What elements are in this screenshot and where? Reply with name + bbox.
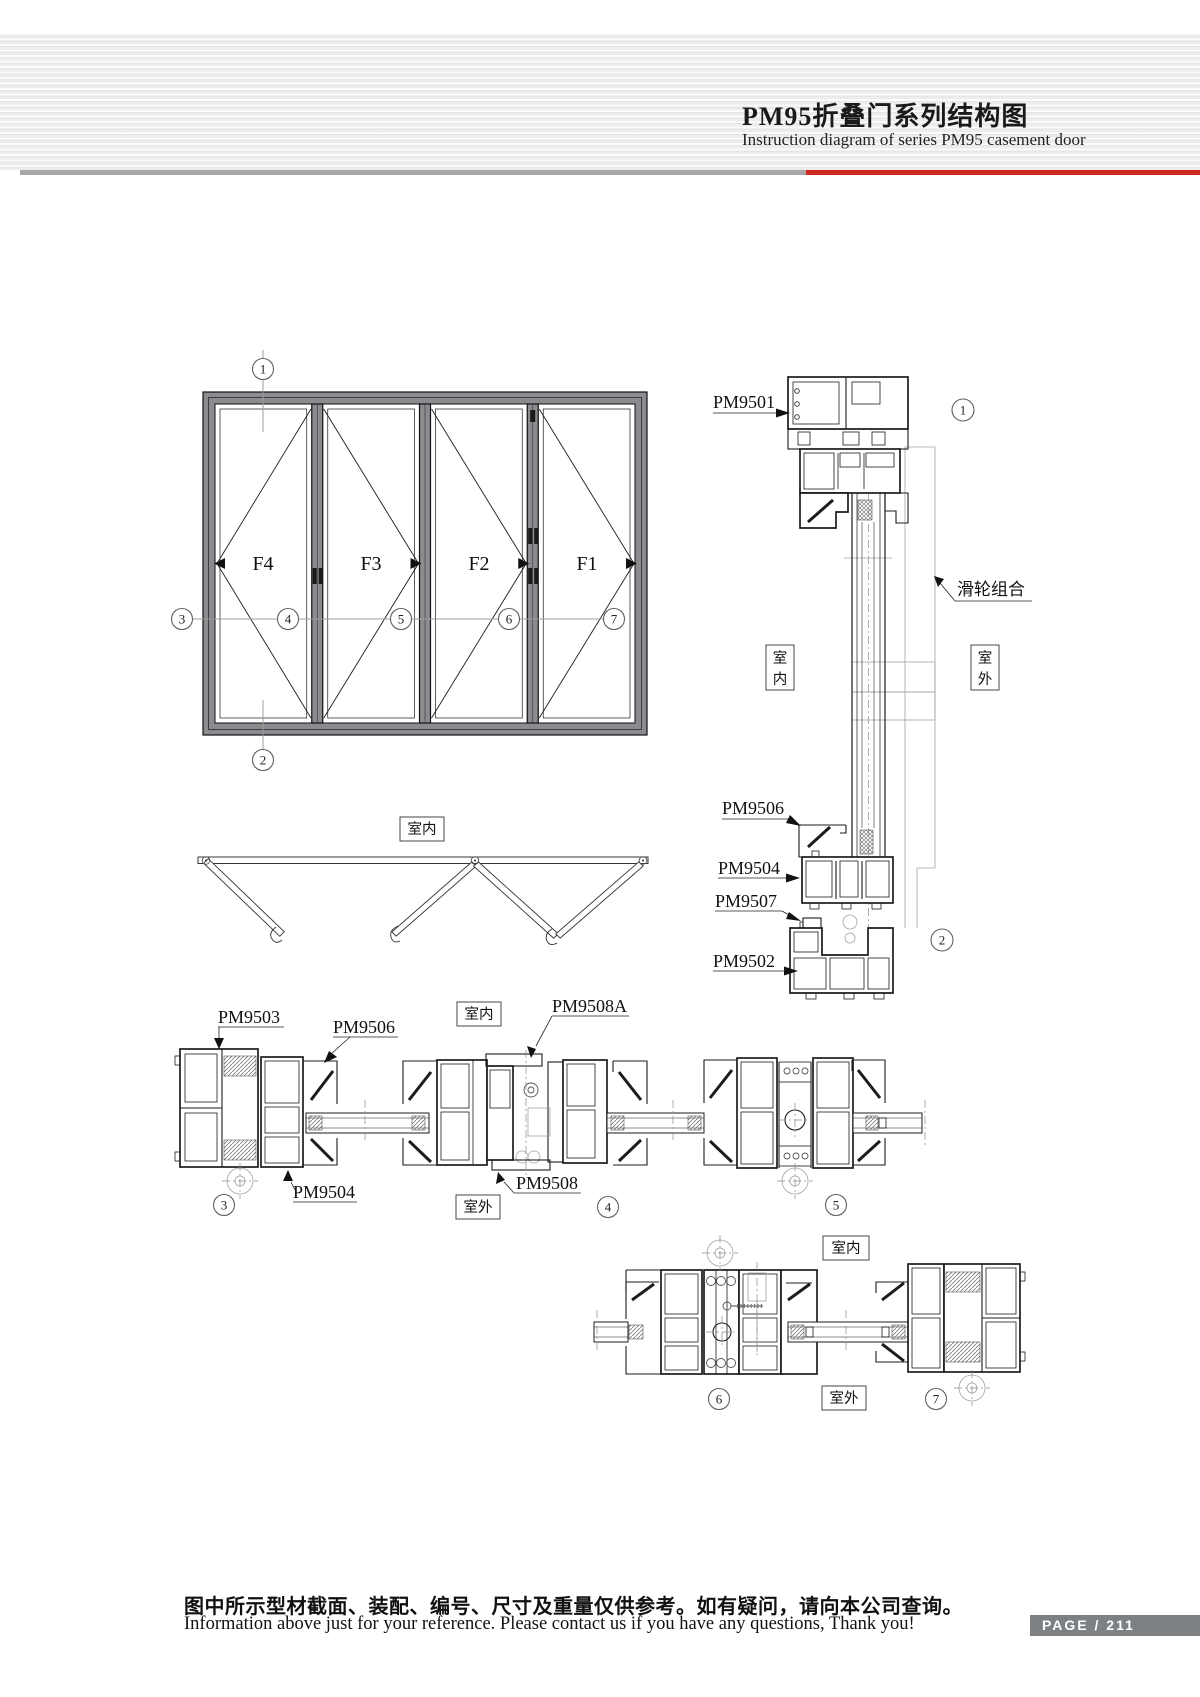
label-pm9502-section: PM9502 bbox=[713, 951, 775, 971]
detail-6 bbox=[626, 1235, 817, 1374]
plan-handles bbox=[271, 926, 557, 945]
label-pm9506-row1: PM9506 bbox=[333, 1017, 395, 1037]
label-pm9504-section: PM9504 bbox=[718, 858, 780, 878]
label-pm9507-section: PM9507 bbox=[715, 891, 777, 911]
indoor-label-bottom: 内 bbox=[773, 671, 788, 688]
section-callout-2: 2 bbox=[939, 933, 946, 948]
bottom-sill-profile bbox=[790, 825, 893, 999]
details-row1: PM9503 PM9506 PM9504 PM9508A PM9508 室内 bbox=[175, 996, 925, 1219]
callout-5: 5 bbox=[398, 612, 405, 627]
callout-3: 3 bbox=[179, 612, 186, 627]
panel-label-f1: F1 bbox=[576, 553, 597, 575]
callout-7: 7 bbox=[611, 612, 618, 627]
vertical-section: PM9501 1 滑轮组合 室 内 室 外 PM9506 PM9504 PM95… bbox=[713, 377, 1032, 999]
plan-indoor-label: 室内 bbox=[408, 821, 437, 838]
label-pm9506-section: PM9506 bbox=[722, 798, 784, 818]
front-elevation: F4 F3 F2 F1 1 2 3 4 5 6 bbox=[172, 350, 648, 771]
technical-drawing: F4 F3 F2 F1 1 2 3 4 5 6 bbox=[0, 0, 1200, 1697]
panel-label-f4: F4 bbox=[252, 553, 273, 575]
details-row2: 室内 室外 6 7 bbox=[594, 1235, 1025, 1410]
label-pm9508: PM9508 bbox=[516, 1173, 578, 1193]
plan-view: 室内 bbox=[198, 817, 648, 945]
section-callout-1: 1 bbox=[960, 403, 967, 418]
outdoor-label-bottom: 外 bbox=[978, 671, 993, 688]
row2-outdoor-label: 室外 bbox=[830, 1390, 859, 1407]
label-pm9508a: PM9508A bbox=[552, 996, 627, 1016]
catalog-page: PM95折叠门系列结构图 Instruction diagram of seri… bbox=[0, 0, 1200, 1697]
callout-6: 6 bbox=[506, 612, 513, 627]
callout-2: 2 bbox=[260, 753, 267, 768]
panel-label-f3: F3 bbox=[360, 553, 381, 575]
folded-leaves bbox=[204, 859, 643, 939]
label-pm9503: PM9503 bbox=[218, 1007, 280, 1027]
row2-callout-6: 6 bbox=[716, 1392, 723, 1407]
row1-indoor-label: 室内 bbox=[465, 1006, 494, 1023]
row1-callout-3: 3 bbox=[221, 1198, 228, 1213]
top-track-profile bbox=[788, 377, 908, 528]
callout-1: 1 bbox=[260, 362, 267, 377]
panel-label-f2: F2 bbox=[468, 553, 489, 575]
outdoor-label-top: 室 bbox=[978, 650, 993, 667]
row1-callout-4: 4 bbox=[605, 1200, 612, 1215]
row2-indoor-label: 室内 bbox=[832, 1240, 861, 1257]
label-pm9504-row1: PM9504 bbox=[293, 1182, 355, 1202]
indoor-label-top: 室 bbox=[773, 650, 788, 667]
row2-callout-7: 7 bbox=[933, 1392, 940, 1407]
footer-note-en: Information above just for your referenc… bbox=[184, 1614, 915, 1635]
label-pm9501: PM9501 bbox=[713, 392, 775, 412]
callout-4: 4 bbox=[285, 612, 292, 627]
row1-outdoor-label: 室外 bbox=[464, 1199, 493, 1216]
page-number-badge: PAGE / 211 bbox=[1030, 1615, 1200, 1636]
row1-callout-5: 5 bbox=[833, 1198, 840, 1213]
label-roller-assembly: 滑轮组合 bbox=[957, 580, 1025, 599]
